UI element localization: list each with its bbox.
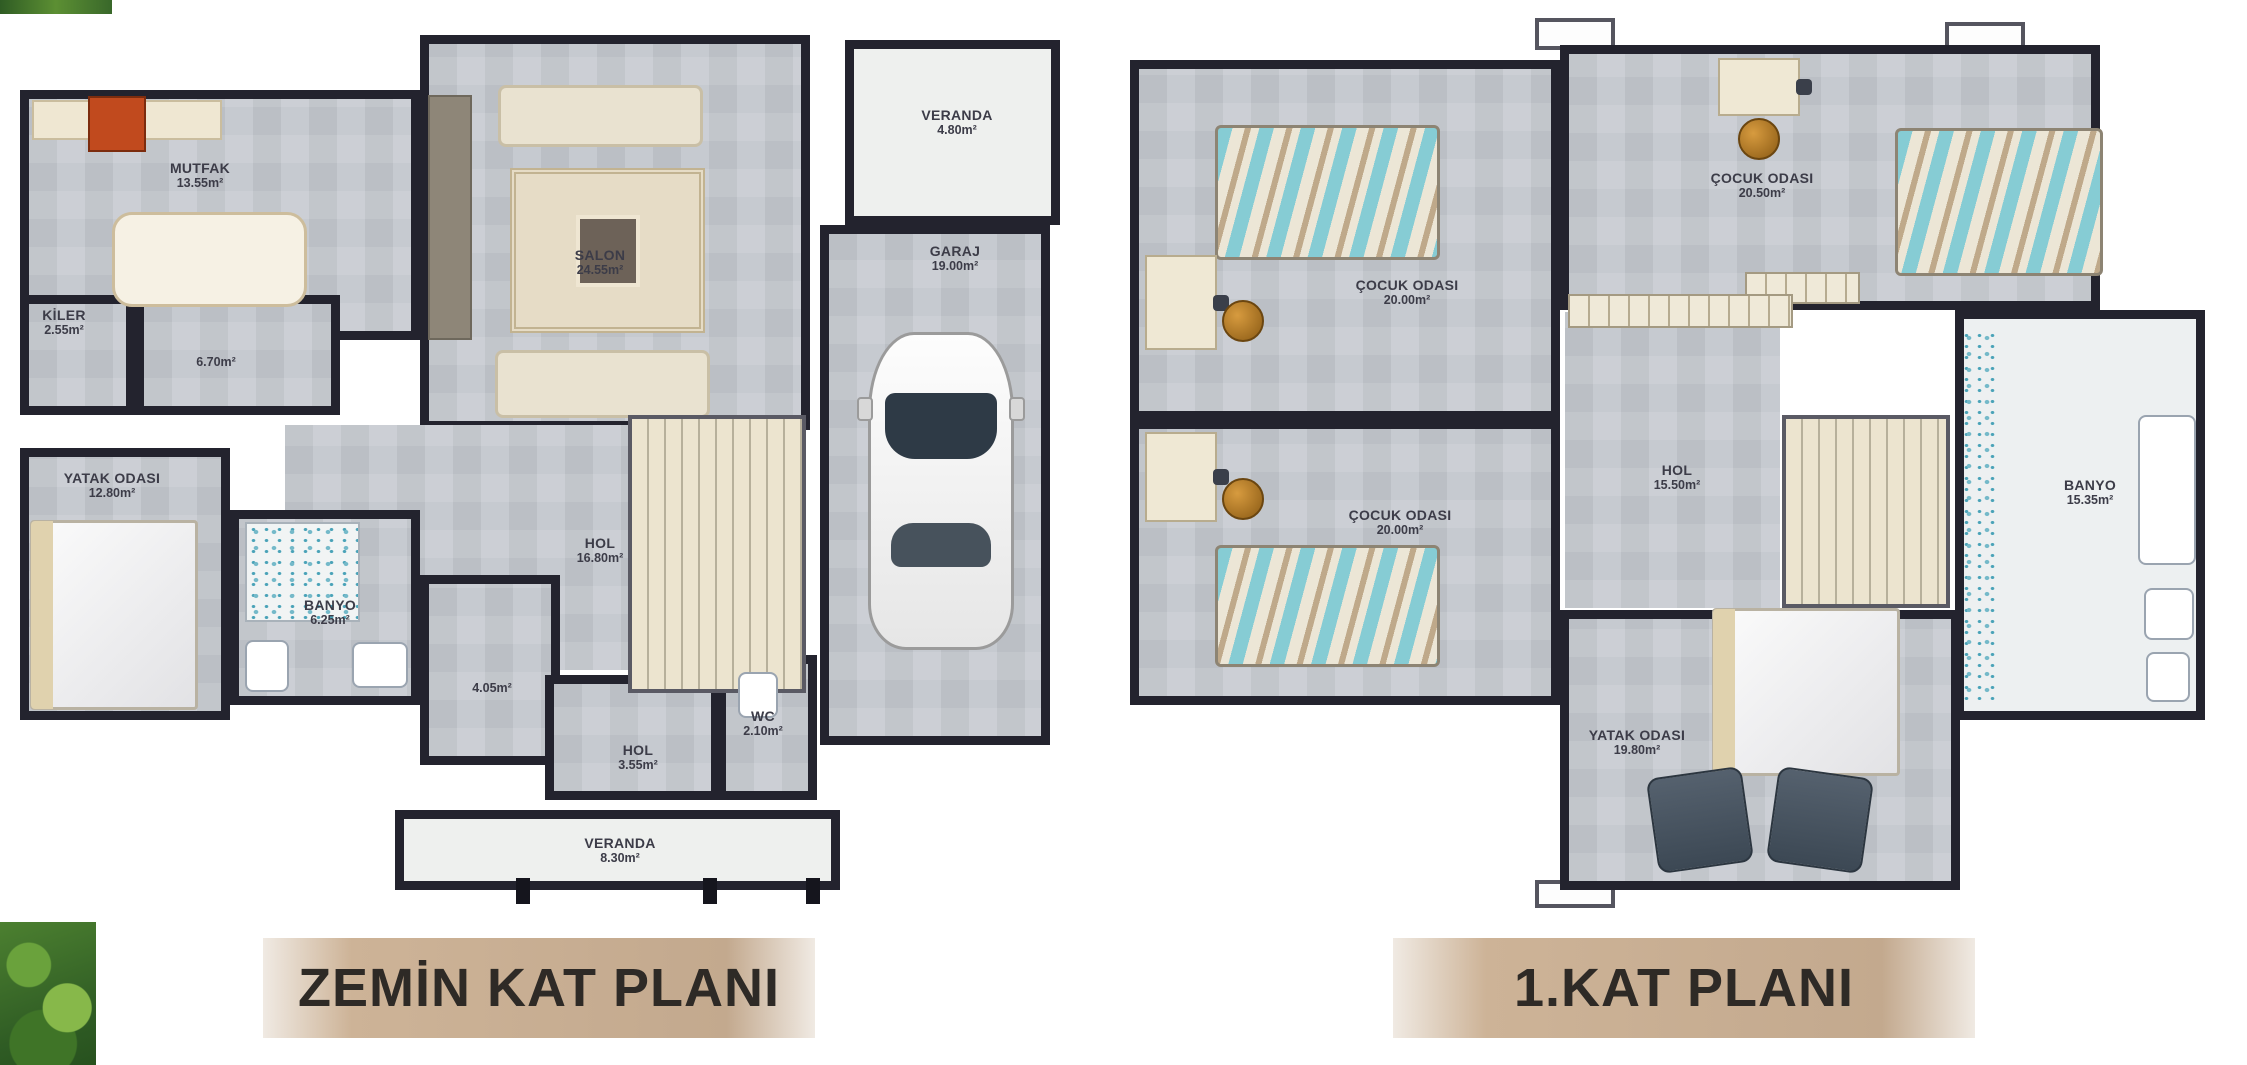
- room-name: ÇOCUK ODASI: [1356, 277, 1459, 293]
- dining-table: [112, 212, 307, 307]
- bed-child-3: [1215, 545, 1440, 667]
- room-name: HOL: [577, 535, 624, 551]
- label-hol-small: HOL 3.55m²: [618, 742, 658, 772]
- room-area: 2.55m²: [42, 323, 86, 337]
- label-banyo-upper: BANYO 15.35m²: [2064, 477, 2116, 507]
- room-area: 19.00m²: [930, 259, 981, 273]
- label-veranda-top: VERANDA 4.80m²: [921, 107, 992, 137]
- veranda-post: [703, 878, 717, 904]
- kitchen-stove: [88, 96, 146, 152]
- room-area: 20.00m²: [1349, 523, 1452, 537]
- room-area: 19.80m²: [1589, 743, 1685, 757]
- bathtub: [2138, 415, 2196, 565]
- bed-master: [30, 520, 198, 710]
- room-name: BANYO: [304, 597, 356, 613]
- bed-child-2: [1895, 128, 2103, 276]
- title-ground-floor: ZEMİN KAT PLANI: [263, 938, 815, 1038]
- label-hol-main: HOL 16.80m²: [577, 535, 624, 565]
- desk-child-1: [1145, 255, 1217, 350]
- car-rear-window: [891, 523, 991, 567]
- room-405: [420, 575, 560, 765]
- stairs-ground: [628, 415, 806, 693]
- label-cocuk-3: ÇOCUK ODASI 20.00m²: [1349, 507, 1452, 537]
- room-hol-small: [545, 675, 720, 800]
- room-name: KİLER: [42, 307, 86, 323]
- car-windshield: [885, 393, 997, 459]
- bathroom-toilet: [2146, 652, 2190, 702]
- toilet: [245, 640, 289, 692]
- label-kiler: KİLER 2.55m²: [42, 307, 86, 337]
- room-area: 20.00m²: [1356, 293, 1459, 307]
- room-name: HOL: [618, 742, 658, 758]
- bathroom-sink: [2144, 588, 2194, 640]
- veranda-post: [516, 878, 530, 904]
- room-name: VERANDA: [921, 107, 992, 123]
- car-mirror: [1009, 397, 1025, 421]
- room-name: GARAJ: [930, 243, 981, 259]
- label-corridor: 6.70m²: [196, 355, 236, 369]
- label-salon: SALON 24.55m²: [575, 247, 626, 277]
- room-area: 4.80m²: [921, 123, 992, 137]
- label-yatak-upper: YATAK ODASI 19.80m²: [1589, 727, 1685, 757]
- room-name: YATAK ODASI: [64, 470, 160, 486]
- room-corridor: [135, 295, 340, 415]
- room-area: 13.55m²: [170, 176, 230, 190]
- label-cocuk-2: ÇOCUK ODASI 20.50m²: [1711, 170, 1814, 200]
- foliage-photo-top-left: [0, 0, 112, 14]
- garage-car: [868, 332, 1014, 650]
- room-area: 2.10m²: [743, 724, 783, 738]
- label-yatak-odasi: YATAK ODASI 12.80m²: [64, 470, 160, 500]
- label-veranda-bottom: VERANDA 8.30m²: [584, 835, 655, 865]
- label-405: 4.05m²: [472, 681, 512, 695]
- title-first-floor: 1.KAT PLANI: [1393, 938, 1975, 1038]
- armchair-left: [1646, 766, 1754, 874]
- room-area: 20.50m²: [1711, 186, 1814, 200]
- room-name: WC: [743, 708, 783, 724]
- room-area: 3.55m²: [618, 758, 658, 772]
- room-area: 6.70m²: [196, 355, 236, 369]
- room-area: 12.80m²: [64, 486, 160, 500]
- pouf-child-2: [1738, 118, 1780, 160]
- desk-child-3: [1145, 432, 1217, 522]
- pouf-child-3: [1222, 478, 1264, 520]
- room-name: MUTFAK: [170, 160, 230, 176]
- label-garaj: GARAJ 19.00m²: [930, 243, 981, 273]
- label-wc: WC 2.10m²: [743, 708, 783, 738]
- bed-master-upper: [1712, 608, 1900, 776]
- bathroom-plants: [1960, 330, 2000, 700]
- veranda-post: [806, 878, 820, 904]
- label-hol-upper: HOL 15.50m²: [1654, 462, 1701, 492]
- label-mutfak: MUTFAK 13.55m²: [170, 160, 230, 190]
- foliage-photo-bottom-left: [0, 922, 96, 1065]
- room-area: 15.50m²: [1654, 478, 1701, 492]
- room-area: 8.30m²: [584, 851, 655, 865]
- room-area: 15.35m²: [2064, 493, 2116, 507]
- room-name: ÇOCUK ODASI: [1711, 170, 1814, 186]
- armchair-right: [1766, 766, 1874, 874]
- sink: [352, 642, 408, 688]
- room-name: SALON: [575, 247, 626, 263]
- room-name: BANYO: [2064, 477, 2116, 493]
- label-banyo: BANYO 6.25m²: [304, 597, 356, 627]
- room-name: YATAK ODASI: [1589, 727, 1685, 743]
- sofa-bottom: [495, 350, 710, 418]
- floorplan-sheet: MUTFAK 13.55m² KİLER 2.55m² 6.70m² YATAK…: [0, 0, 2247, 1065]
- bed-child-1: [1215, 125, 1440, 260]
- room-name: ÇOCUK ODASI: [1349, 507, 1452, 523]
- room-hol-upper: [1565, 312, 1780, 608]
- room-area: 6.25m²: [304, 613, 356, 627]
- room-area: 24.55m²: [575, 263, 626, 277]
- room-area: 4.05m²: [472, 681, 512, 695]
- room-area: 16.80m²: [577, 551, 624, 565]
- salon-cabinet: [428, 95, 472, 340]
- room-name: HOL: [1654, 462, 1701, 478]
- label-cocuk-1: ÇOCUK ODASI 20.00m²: [1356, 277, 1459, 307]
- car-mirror: [857, 397, 873, 421]
- desk-child-2: [1718, 58, 1800, 116]
- hol-dresser: [1568, 294, 1793, 328]
- pouf-child-1: [1222, 300, 1264, 342]
- stairs-upper: [1782, 415, 1950, 608]
- sofa-top: [498, 85, 703, 147]
- room-name: VERANDA: [584, 835, 655, 851]
